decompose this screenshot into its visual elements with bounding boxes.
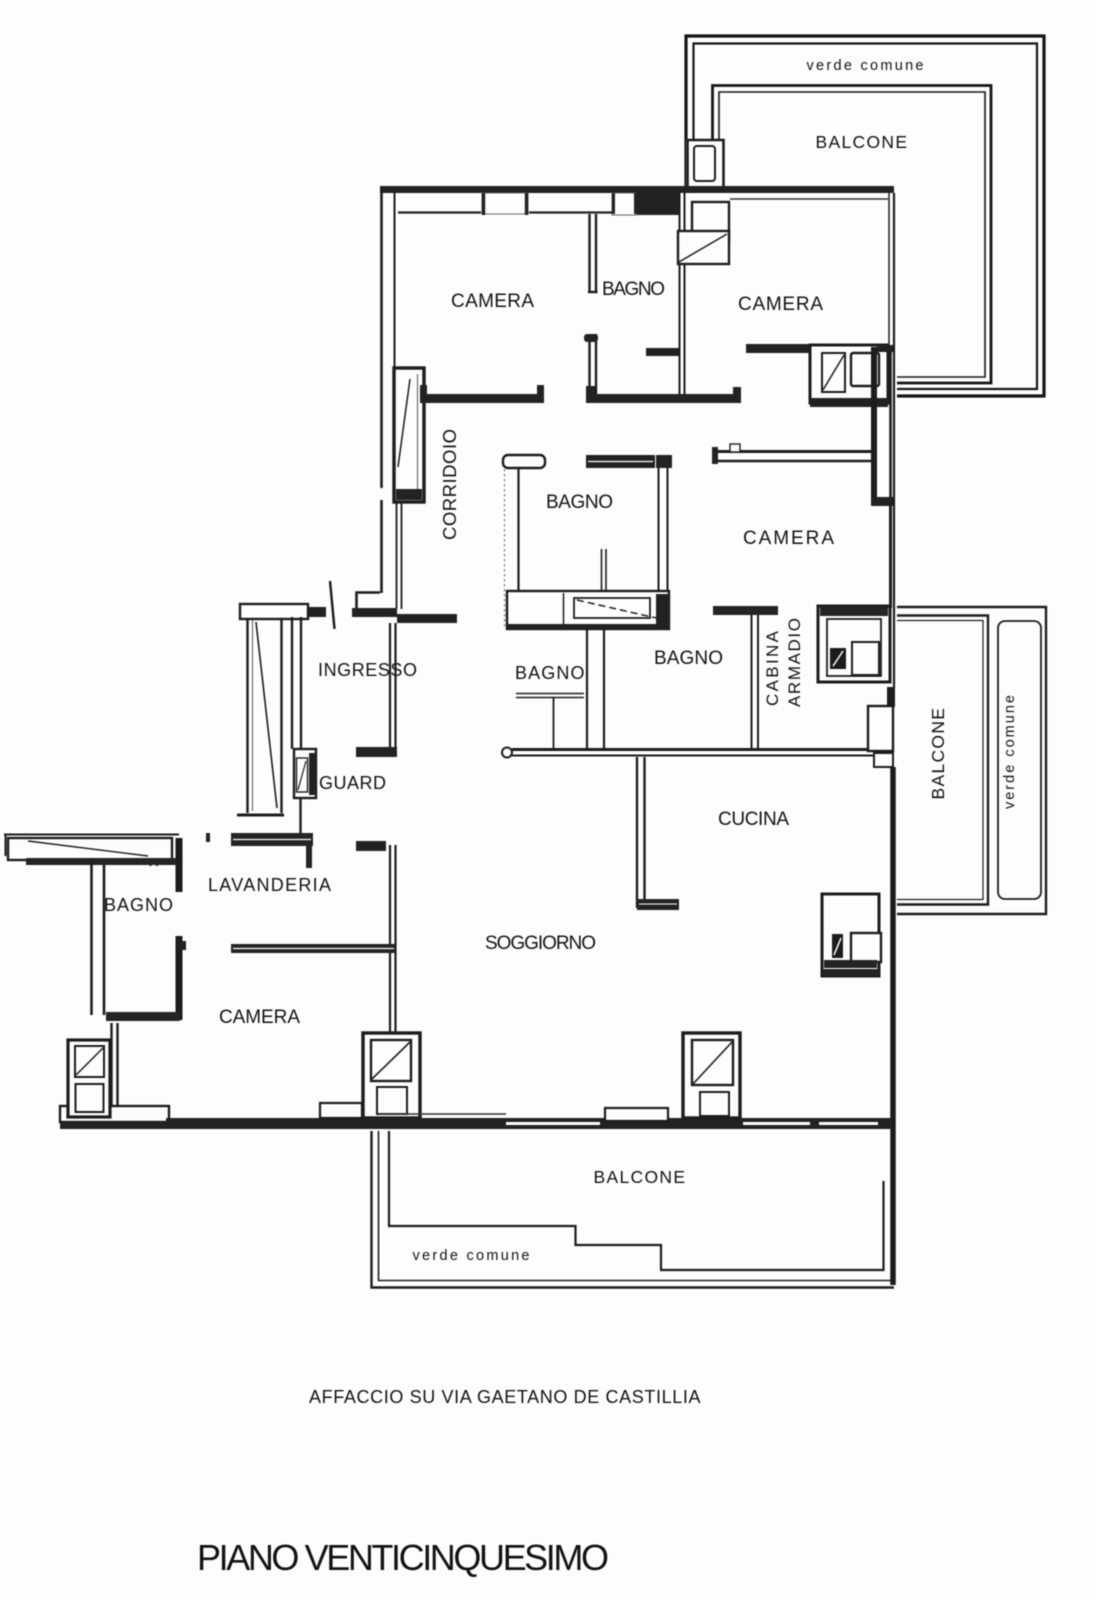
svg-text:BALCONE: BALCONE: [816, 132, 909, 152]
svg-text:BAGNO: BAGNO: [515, 663, 585, 683]
svg-text:SOGGIORNO: SOGGIORNO: [485, 933, 597, 954]
svg-text:CAMERA: CAMERA: [738, 294, 824, 315]
svg-text:INGRESSO: INGRESSO: [318, 660, 418, 680]
svg-text:verde comune: verde comune: [1002, 695, 1018, 809]
svg-text:BAGNO: BAGNO: [546, 492, 614, 513]
svg-text:PIANO VENTICINQUESIMO: PIANO VENTICINQUESIMO: [197, 1537, 609, 1578]
svg-text:CAMERA: CAMERA: [451, 291, 535, 312]
svg-text:AFFACCIO SU VIA GAETANO DE CAS: AFFACCIO SU VIA GAETANO DE CASTILLIA: [309, 1387, 701, 1407]
svg-text:CAMERA: CAMERA: [743, 528, 835, 549]
svg-text:GUARD: GUARD: [319, 773, 387, 793]
svg-text:CORRIDOIO: CORRIDOIO: [439, 428, 460, 540]
svg-text:BALCONE: BALCONE: [594, 1167, 687, 1187]
svg-text:verde comune: verde comune: [413, 1248, 530, 1264]
svg-text:CAMERA: CAMERA: [219, 1007, 301, 1028]
svg-text:BAGNO: BAGNO: [602, 279, 666, 300]
svg-text:BAGNO: BAGNO: [104, 895, 174, 915]
svg-text:ARMADIO: ARMADIO: [785, 617, 804, 707]
svg-text:LAVANDERIA: LAVANDERIA: [208, 875, 332, 895]
svg-text:BALCONE: BALCONE: [928, 707, 948, 800]
svg-text:CUCINA: CUCINA: [718, 809, 790, 830]
svg-text:BAGNO: BAGNO: [654, 648, 724, 669]
svg-text:CABINA: CABINA: [763, 630, 782, 706]
svg-text:verde comune: verde comune: [807, 58, 924, 74]
